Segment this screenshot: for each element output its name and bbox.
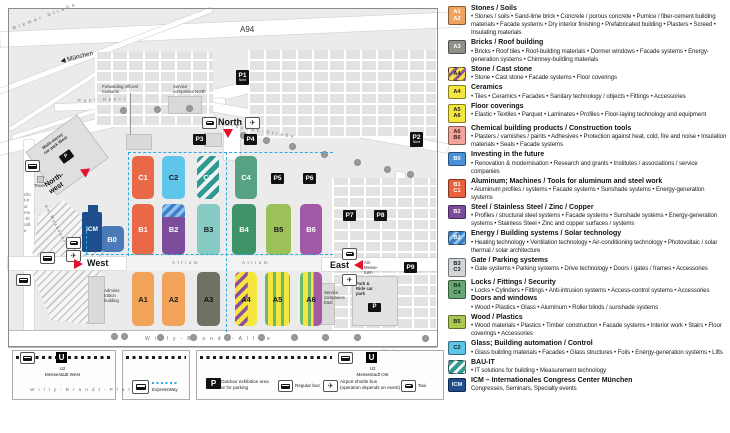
- legend-badge: C2: [448, 341, 466, 355]
- parking-badge-P7: P7: [343, 210, 356, 221]
- hall-label: B1: [138, 225, 148, 234]
- legend-entry-A3: A3Bricks / Roof building• Bricks • Roof …: [448, 39, 727, 63]
- service-north-label: Service companies North: [173, 84, 205, 94]
- legend-badge: A5A6: [448, 104, 466, 123]
- gate-marker: [111, 333, 118, 340]
- legend-bullets: • Renovation & modernisation • Research …: [471, 160, 727, 176]
- gate-marker: [258, 334, 265, 341]
- parking-badge-P1: P1Nord: [236, 70, 249, 85]
- parking-badge-P9: P9: [404, 262, 417, 273]
- gate-marker: [291, 334, 298, 341]
- hall-A5[interactable]: A5: [265, 272, 290, 326]
- legend-badge: A4: [448, 85, 466, 99]
- expressway-route-left: [128, 152, 129, 256]
- legend-badge: A3: [448, 40, 466, 54]
- legend-bullets: • Tiles • Ceramics • Facades • Sanitary …: [471, 93, 686, 101]
- hall-B3[interactable]: B3: [197, 204, 220, 255]
- hall-label: B4: [239, 225, 249, 234]
- gate-marker: [384, 166, 391, 173]
- legend-entry-A4: A4Ceramics• Tiles • Ceramics • Facades •…: [448, 84, 727, 100]
- legend-bullets: • Bricks • Roof tiles • Roof-building ma…: [471, 48, 727, 64]
- hall-label: B6: [306, 225, 316, 234]
- gate-marker: [322, 334, 329, 341]
- legend-entry-A5-A6: A5A6Floor coverings• Elastic • Textiles …: [448, 103, 727, 123]
- legend-bullets: • Gate systems • Parking systems • Drive…: [471, 265, 708, 273]
- atrium-label-2: Atrium: [242, 260, 270, 265]
- legend-entry-B4-C4: B4C4Locks / Fittings / Security• Locks •…: [448, 279, 727, 312]
- legend-title: Stones / Soils: [471, 5, 727, 13]
- taxi-icon: [401, 380, 416, 392]
- hall-label: C1: [138, 173, 148, 182]
- legend-badge: B2: [448, 231, 466, 245]
- legend-bullets: • IT solutions for building • Measuremen…: [471, 367, 606, 375]
- icm-label: ICM: [82, 226, 102, 233]
- entrance-west-marker: [74, 259, 83, 269]
- hall-label: A3: [204, 295, 214, 304]
- legend-entry-B0: B0Investing in the future• Renovation & …: [448, 151, 727, 175]
- airport-shuttle-icon-east: ✈: [342, 274, 357, 286]
- legend-bullets: • Profiles / structural steel systems • …: [471, 212, 727, 228]
- legend-entry-A1-A2: A1A2Stones / Soils• Stones / soils • San…: [448, 5, 727, 37]
- legend-bullets: • Aluminum profiles / systems • Facade s…: [471, 186, 727, 202]
- legend-subtitle: Doors and windows: [471, 295, 709, 303]
- legend-title: BAU-IT: [471, 359, 606, 367]
- legend-entry-ICM: ICMICM – Internationales Congress Center…: [448, 377, 727, 393]
- airport-shuttle-legend-icon: ✈: [323, 380, 338, 392]
- legend-bullets: • Stones / soils • Sand-lime brick • Con…: [471, 13, 727, 37]
- administration-label: Adminis- tration building: [104, 288, 121, 304]
- atrium-label-1: Atrium: [172, 260, 200, 265]
- entrance-west-label: West: [87, 258, 108, 268]
- hall-C4[interactable]: C4: [235, 156, 257, 199]
- legend-badge: [448, 360, 466, 374]
- legend-entry-B2: B2Energy / Building systems / Solar tech…: [448, 230, 727, 254]
- legend-badge: A6B6: [448, 126, 466, 145]
- parking-lot-north: [248, 50, 436, 138]
- gate-marker: [186, 105, 193, 112]
- administration-building: [88, 276, 105, 324]
- entrance-north-marker: [223, 129, 233, 138]
- station-ost-label: U2 Messestadt Ost: [350, 366, 395, 377]
- legend-entry-B1-C1: B1C1Aluminum; Machines / Tools for alumi…: [448, 178, 727, 202]
- station-west-label: U2 Messestadt West: [40, 366, 85, 377]
- transit-line-east: [200, 356, 332, 359]
- legend-title: Locks / Fittings / Security: [471, 279, 709, 287]
- legend-title: Stone / Cast stone: [471, 66, 617, 74]
- hall-B5[interactable]: B5: [266, 204, 291, 255]
- hall-label: C3: [203, 173, 213, 182]
- hall-A1[interactable]: A1: [132, 272, 154, 326]
- legend-badge: A4: [448, 67, 466, 81]
- legend-title: ICM – Internationales Congress Center Mü…: [471, 377, 632, 385]
- hall-label: C4: [241, 173, 251, 182]
- hall-A2[interactable]: A2: [162, 272, 185, 326]
- hall-label: A4: [241, 295, 251, 304]
- legend-title: Gate / Parking systems: [471, 257, 708, 265]
- small-building-1: [204, 133, 222, 147]
- hall-label: A6: [306, 295, 316, 304]
- airport-shuttle-icon: ✈: [245, 117, 260, 129]
- icm-annex: [88, 205, 98, 215]
- parking-badge-P6: P6: [303, 173, 316, 184]
- car-access-icon-west: [66, 237, 81, 249]
- legend-bullets: • Heating technology • Ventilation techn…: [471, 239, 727, 255]
- gate-marker: [120, 107, 127, 114]
- hall-B2[interactable]: B2: [162, 204, 185, 255]
- hall-label: B2: [169, 225, 179, 234]
- hall-B4[interactable]: B4: [232, 204, 256, 255]
- regular-bus-icon: [278, 380, 293, 392]
- legend-title: Glass; Building automation / Control: [471, 340, 723, 348]
- hall-B0[interactable]: B0: [100, 226, 124, 252]
- legend-bullets: • Locks • Cylinders • Fittings • Anti-in…: [471, 287, 709, 295]
- gate-marker: [157, 334, 164, 341]
- legend-entry-B2: B2Steel / Stainless Steel / Zinc / Coppe…: [448, 204, 727, 228]
- olof-palme-label: Olof-Palme-Straße: [24, 192, 31, 234]
- bus-stop-icon-east: [338, 352, 353, 364]
- parking-badge-P2: P2Nord: [410, 132, 423, 147]
- gate-marker: [354, 159, 361, 166]
- parking-badge-P4: P4: [244, 134, 257, 145]
- legend-bullets: • Plasters / varnishes / paints • Adhesi…: [471, 133, 727, 149]
- legend-title: Wood / Plastics: [471, 314, 727, 322]
- gate-marker: [407, 171, 414, 178]
- taxi-label: Taxi: [418, 383, 426, 389]
- car-access-icon: [202, 117, 217, 129]
- entrance-north-label: North: [218, 117, 242, 127]
- expressway-route-west: [86, 226, 87, 254]
- expressway-icon: [132, 380, 149, 394]
- outdoor-p-icon: P: [206, 378, 221, 389]
- service-east-label: Service companies East: [324, 290, 345, 306]
- legend-bullets: Congresses, Seminars, Specialty events: [471, 385, 632, 393]
- hall-C2[interactable]: C2: [162, 156, 185, 199]
- legend-entry-A4: A4Stone / Cast stone• Stone • Cast stone…: [448, 66, 727, 82]
- gate-marker: [154, 106, 161, 113]
- legend-badge: B3C3: [448, 258, 466, 277]
- hall-ICM[interactable]: ICM: [82, 212, 102, 252]
- legend-badge: B4C4: [448, 280, 466, 299]
- gate-marker: [263, 137, 270, 144]
- car-access-icon-east: [342, 248, 357, 260]
- bus-stop-icon: [40, 252, 55, 264]
- hall-B6[interactable]: B6: [300, 204, 322, 255]
- gate-marker: [422, 335, 429, 342]
- outdoor-exhibition-label: Outdoor exhibition area or for parking: [221, 379, 269, 390]
- legend-bullets: • Glass building materials • Facades • G…: [471, 349, 723, 357]
- hall-label: C2: [169, 173, 179, 182]
- legend-entry-B5: B5Wood / Plastics• Wood materials • Plas…: [448, 314, 727, 338]
- forwarding-building: [126, 134, 152, 150]
- expressway-route-mid: [226, 152, 227, 332]
- legend-title: Floor coverings: [471, 103, 706, 111]
- category-legend: A1A2Stones / Soils• Stones / soils • San…: [448, 5, 727, 395]
- legend-title: Steel / Stainless Steel / Zinc / Copper: [471, 204, 727, 212]
- hall-label: A2: [169, 295, 179, 304]
- park-ride-label: Park & Ride car park: [356, 281, 373, 297]
- bus-stop-icon: [16, 274, 31, 286]
- parking-badge-P5: P5: [271, 173, 284, 184]
- entrance-east-marker: [354, 260, 363, 270]
- legend-badge: B0: [448, 152, 466, 166]
- hall-label: B5: [274, 225, 284, 234]
- entrance-east-label: East: [330, 260, 349, 270]
- ubahn-ost-icon[interactable]: U: [366, 352, 377, 363]
- legend-bullets: • Wood • Plastics • Glass • Aluminum • R…: [471, 304, 709, 312]
- legend-title: Energy / Building systems / Solar techno…: [471, 230, 727, 238]
- legend-badge: B2: [448, 205, 466, 219]
- willy-brandt-platz-label: Willy-Brandt-Platz: [30, 388, 140, 393]
- hall-label: B0: [107, 235, 117, 244]
- forwarding-leader-line: [130, 93, 131, 135]
- am-messeturm-label: Am Messe- turm: [364, 260, 378, 276]
- hall-A4[interactable]: A4: [235, 272, 257, 326]
- legend-title: Bricks / Roof building: [471, 39, 727, 47]
- regular-bus-label: Regular bus: [295, 383, 320, 389]
- legend-title: Ceramics: [471, 84, 686, 92]
- expressway-route-top: [128, 152, 333, 153]
- gate-marker: [354, 334, 361, 341]
- ubahn-west-icon[interactable]: U: [56, 352, 67, 363]
- parking-badge-P8: P8: [374, 210, 387, 221]
- gate-marker: [289, 143, 296, 150]
- service-companies-north-building: [168, 96, 202, 114]
- bus-stop-icon-west: [20, 352, 35, 364]
- legend-badge: B1C1: [448, 179, 466, 198]
- legend-title: Chemical building products / Constructio…: [471, 125, 727, 133]
- legend-bullets: • Wood materials • Plastics • Timber con…: [471, 322, 727, 338]
- hall-label: B3: [204, 225, 214, 234]
- a94-label: A94: [240, 25, 254, 34]
- legend-badge: ICM: [448, 378, 466, 392]
- legend-bullets: • Stone • Cast stone • Facade systems • …: [471, 74, 617, 82]
- legend-title: Aluminum; Machines / Tools for aluminum …: [471, 178, 727, 186]
- legend-badge: B5: [448, 315, 466, 329]
- bus-stop-icon: [25, 160, 40, 172]
- legend-bullets: • Elastic • Textiles • Parquet • Laminat…: [471, 111, 706, 119]
- gate-marker: [190, 334, 197, 341]
- legend-title: Investing in the future: [471, 151, 727, 159]
- hall-C3[interactable]: C3: [197, 156, 219, 199]
- expressway-dots-sample: [152, 382, 179, 384]
- legend-entry-A6-B6: A6B6Chemical building products / Constru…: [448, 125, 727, 149]
- hall-label: A1: [138, 295, 148, 304]
- legend-badge: A1A2: [448, 6, 466, 25]
- legend-entry-C2: C2Glass; Building automation / Control• …: [448, 340, 727, 356]
- hall-B1[interactable]: B1: [132, 204, 154, 255]
- gate-marker: [121, 333, 128, 340]
- trade-fair-map-page: C1C2C3C4B0B1B2B3B4B5B6A1A2A3A4A5A6 P1Nor…: [0, 0, 730, 433]
- hall-A6[interactable]: A6: [300, 272, 322, 326]
- parking-badge-P3: P3: [193, 134, 206, 145]
- hall-A3[interactable]: A3: [197, 272, 220, 326]
- legend-entry-B3-C3: B3C3Gate / Parking systems• Gate systems…: [448, 257, 727, 277]
- expressway-route-bottom: [86, 254, 333, 255]
- expressway-label: ExpressWay: [152, 387, 178, 393]
- forwarding-offices-label: Forwarding offices/ Customs: [102, 84, 138, 94]
- gate-marker: [224, 334, 231, 341]
- hall-label: A5: [273, 295, 283, 304]
- legend-entry-BAU-IT: BAU-IT• IT solutions for building • Meas…: [448, 359, 727, 375]
- airport-shuttle-label: Airport shuttle bus (operation depends o…: [340, 379, 400, 390]
- park-ride-p-badge: P: [368, 303, 381, 312]
- hall-C1[interactable]: C1: [132, 156, 154, 199]
- transit-line-mid: [126, 356, 186, 359]
- willy-brandt-allee-label: Willy-Brandt-Allee: [145, 336, 275, 342]
